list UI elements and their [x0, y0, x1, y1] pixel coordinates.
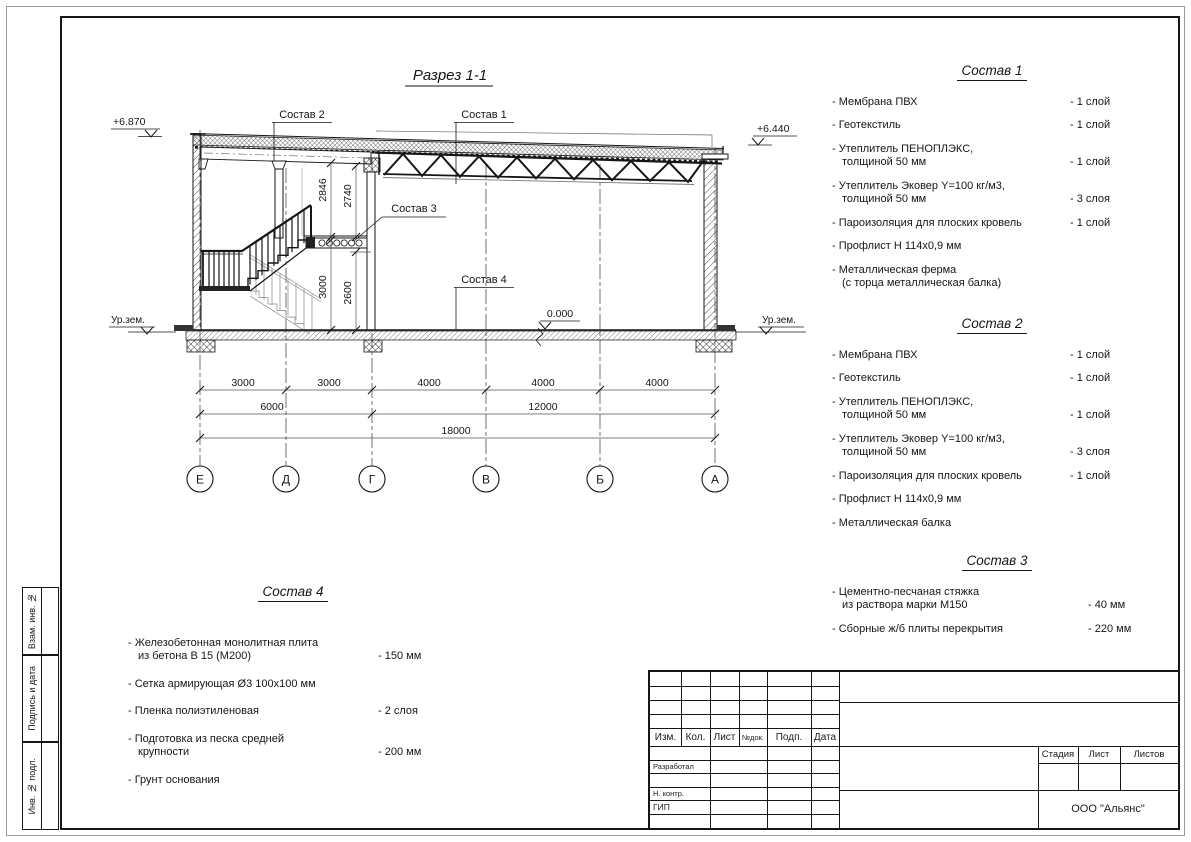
right-wall	[702, 154, 728, 330]
ground-left-label: Ур.зем.	[111, 315, 145, 326]
list-item: - Металлическая ферма (с торца металличе…	[832, 264, 1152, 291]
elevation-mark-right: +6.440	[748, 123, 797, 145]
zero-level-label: 0.000	[547, 308, 573, 320]
list-item: - Утеплитель Эковер Y=100 кг/м3, толщино…	[832, 180, 1152, 207]
item-text: - Сборные ж/б плиты перекрытия	[832, 623, 1088, 637]
sostav1-list: Состав 1 - Мембрана ПВХ- 1 слой - Геотек…	[832, 64, 1152, 301]
item-text: - Утеплитель ПЕНОПЛЭКС, толщиной 50 мм	[832, 396, 1070, 423]
item-text: - Мембрана ПВХ	[832, 349, 1070, 363]
foundation-mid	[364, 340, 382, 352]
item-value: - 1 слой	[1070, 217, 1110, 231]
list-item: - Сетка армирующая Ø3 100х100 мм	[128, 678, 458, 692]
sostav2-title: Состав 2	[957, 316, 1028, 334]
side-label-area: Подпись и дата	[23, 656, 42, 741]
list-item: - Подготовка из песка средней крупности-…	[128, 733, 458, 760]
axis-label-a: А	[711, 473, 719, 487]
item-text: - Пароизоляция для плоских кровель	[832, 470, 1070, 484]
side-label-area: Инв. № подл.	[23, 743, 42, 829]
elevation-mark-left: +6.870	[111, 116, 162, 137]
elev-left-label: +6.870	[113, 116, 146, 128]
vdim-2846: 2846	[317, 178, 329, 202]
sostav3-title: Состав 3	[962, 553, 1033, 571]
stamp-col-kol: Кол.	[681, 728, 710, 746]
dim-row1-3: 4000	[531, 377, 555, 389]
stairs	[199, 205, 321, 334]
stamp-role-gip: ГИП	[650, 800, 713, 814]
dim-row1-1: 3000	[317, 377, 341, 389]
stamp-sheets-header: Листов	[1120, 746, 1178, 763]
stamp-col-ndok: №док.	[739, 728, 767, 746]
zero-level-mark: 0.000	[539, 308, 580, 329]
list-item: - Пароизоляция для плоских кровель- 1 сл…	[832, 217, 1152, 231]
list-item: - Сборные ж/б плиты перекрытия- 220 мм	[832, 623, 1162, 637]
item-text: - Профлист Н 114х0,9 мм	[832, 240, 1070, 254]
stamp-role-ncontr: Н. контр.	[650, 787, 713, 800]
item-value: - 150 мм	[378, 650, 421, 664]
item-text: - Пароизоляция для плоских кровель	[832, 217, 1070, 231]
ground-right-label: Ур.зем.	[762, 315, 796, 326]
callout-sostav4: Состав 4	[454, 274, 514, 329]
item-text: - Геотекстиль	[832, 119, 1070, 133]
apron-right	[717, 325, 735, 331]
callout-sostav2-label: Состав 2	[279, 109, 325, 121]
axis-label-d: Д	[282, 473, 290, 487]
axis-label-v: В	[482, 473, 490, 487]
axis-label-g: Г	[369, 473, 376, 487]
dim-row1-0: 3000	[231, 377, 255, 389]
item-text: - Утеплитель Эковер Y=100 кг/м3, толщино…	[832, 180, 1070, 207]
vdim-2600: 2600	[342, 281, 354, 305]
list-item: - Геотекстиль- 1 слой	[832, 119, 1152, 133]
item-text: - Грунт основания	[128, 774, 378, 788]
list-item: - Утеплитель Эковер Y=100 кг/м3, толщино…	[832, 433, 1152, 460]
sostav2-list: Состав 2 - Мембрана ПВХ- 1 слой - Геотек…	[832, 317, 1152, 540]
list-item: - Профлист Н 114х0,9 мм	[832, 493, 1152, 507]
list-item: - Пленка полиэтиленовая- 2 слоя	[128, 705, 458, 719]
list-item: - Металлическая балка	[832, 517, 1152, 531]
list-item: - Мембрана ПВХ- 1 слой	[832, 96, 1152, 110]
list-item: - Железобетонная монолитная плита из бет…	[128, 637, 458, 664]
stamp-col-podp: Подп.	[767, 728, 811, 746]
item-text: - Металлическая балка	[832, 517, 1070, 531]
title-block: Изм. Кол. Лист №док. Подп. Дата Разработ…	[648, 670, 1180, 830]
side-label-vzam: Взам. инв. №	[27, 593, 37, 649]
sostav4-title: Состав 4	[258, 584, 329, 602]
item-text: - Утеплитель ПЕНОПЛЭКС, толщиной 50 мм	[832, 143, 1070, 170]
side-cell-inv: Инв. № подл.	[22, 742, 59, 830]
item-value: - 1 слой	[1070, 372, 1110, 386]
item-text: - Мембрана ПВХ	[832, 96, 1070, 110]
vdim-3000: 3000	[317, 275, 329, 299]
item-value: - 1 слой	[1070, 96, 1110, 110]
foundation-right	[696, 340, 732, 352]
side-cell-podpis: Подпись и дата	[22, 655, 59, 742]
dim-row1-2: 4000	[417, 377, 441, 389]
section-title-label: Разрез 1-1	[413, 67, 487, 84]
item-text: - Пленка полиэтиленовая	[128, 705, 378, 719]
stamp-role-developer: Разработал	[650, 760, 713, 773]
item-value: - 2 слоя	[378, 705, 418, 719]
item-text: - Сетка армирующая Ø3 100х100 мм	[128, 678, 378, 692]
item-text: - Подготовка из песка средней крупности	[128, 733, 378, 760]
side-label-podpis: Подпись и дата	[27, 666, 37, 731]
axis-bubbles: Е Д Г В Б А	[187, 466, 728, 492]
apron-left	[174, 325, 193, 331]
axis-bubble-v: В	[473, 466, 499, 492]
list-item: - Утеплитель ПЕНОПЛЭКС, толщиной 50 мм- …	[832, 143, 1152, 170]
dim-row3-0: 18000	[441, 425, 470, 437]
list-item: - Утеплитель ПЕНОПЛЭКС, толщиной 50 мм- …	[832, 396, 1152, 423]
item-text: - Профлист Н 114х0,9 мм	[832, 493, 1070, 507]
item-value: - 1 слой	[1070, 156, 1110, 170]
sostav3-list: Состав 3 - Цементно-песчаная стяжка из р…	[832, 554, 1162, 646]
dimensions-horizontal: 3000 3000 4000 4000 4000 6000 12000 1800…	[196, 377, 719, 442]
axis-bubble-e: Е	[187, 466, 213, 492]
list-item: - Мембрана ПВХ- 1 слой	[832, 349, 1152, 363]
axis-bubble-d: Д	[273, 466, 299, 492]
item-value: - 40 мм	[1088, 599, 1125, 613]
stamp-col-list: Лист	[710, 728, 739, 746]
stamp-col-data: Дата	[811, 728, 839, 746]
item-value: - 200 мм	[378, 746, 421, 760]
item-text: - Металлическая ферма (с торца металличе…	[832, 264, 1070, 291]
dim-row1-4: 4000	[645, 377, 669, 389]
callout-sostav4-label: Состав 4	[461, 274, 507, 286]
item-value: - 1 слой	[1070, 119, 1110, 133]
list-item: - Цементно-песчаная стяжка из раствора м…	[832, 586, 1162, 613]
stamp-sheet-header: Лист	[1078, 746, 1120, 763]
item-value: - 1 слой	[1070, 409, 1110, 423]
callout-sostav1-label: Состав 1	[461, 109, 507, 121]
ground-level-left: Ур.зем.	[109, 315, 155, 334]
item-text: - Утеплитель Эковер Y=100 кг/м3, толщино…	[832, 433, 1070, 460]
elev-right-label: +6.440	[757, 123, 790, 135]
sostav4-list: Состав 4 - Железобетонная монолитная пли…	[128, 585, 458, 801]
list-item: - Геотекстиль- 1 слой	[832, 372, 1152, 386]
item-value: - 1 слой	[1070, 470, 1110, 484]
dim-row2-0: 6000	[260, 401, 284, 413]
ground-level-right: Ур.зем.	[758, 315, 804, 334]
list-item: - Профлист Н 114х0,9 мм	[832, 240, 1152, 254]
foundation-left	[187, 340, 215, 352]
sostav1-title: Состав 1	[957, 63, 1028, 81]
drawing-sheet: Разрез 1-1	[0, 0, 1191, 842]
side-label-inv: Инв. № подл.	[27, 758, 37, 814]
stair-landing	[199, 251, 250, 291]
side-label-area: Взам. инв. №	[23, 588, 42, 654]
list-item: - Грунт основания	[128, 774, 458, 788]
column-g	[302, 168, 375, 330]
drawing-title: Разрез 1-1	[405, 67, 493, 86]
beam-bearing-block	[364, 158, 380, 172]
list-item: - Пароизоляция для плоских кровель- 1 сл…	[832, 470, 1152, 484]
axis-bubble-a: А	[702, 466, 728, 492]
axis-label-b: Б	[596, 473, 604, 487]
axis-bubble-b: Б	[587, 466, 613, 492]
item-text: - Железобетонная монолитная плита из бет…	[128, 637, 378, 664]
item-text: - Геотекстиль	[832, 372, 1070, 386]
stamp-organization: ООО "Альянс"	[1038, 790, 1178, 828]
item-value: - 3 слоя	[1070, 193, 1110, 207]
side-cell-vzam: Взам. инв. №	[22, 587, 59, 655]
stamp-stage-header: Стадия	[1038, 746, 1078, 763]
vdim-2740: 2740	[342, 184, 354, 208]
column-capital	[272, 161, 286, 169]
stamp-col-izm: Изм.	[650, 728, 681, 746]
item-value: - 220 мм	[1088, 623, 1131, 637]
callout-sostav3-label: Состав 3	[391, 203, 437, 215]
axis-label-e: Е	[196, 473, 204, 487]
axis-bubble-g: Г	[359, 466, 385, 492]
item-value: - 3 слоя	[1070, 446, 1110, 460]
stair-flight-far	[249, 254, 321, 334]
dim-row2-1: 12000	[528, 401, 557, 413]
item-text: - Цементно-песчаная стяжка из раствора м…	[832, 586, 1088, 613]
item-value: - 1 слой	[1070, 349, 1110, 363]
